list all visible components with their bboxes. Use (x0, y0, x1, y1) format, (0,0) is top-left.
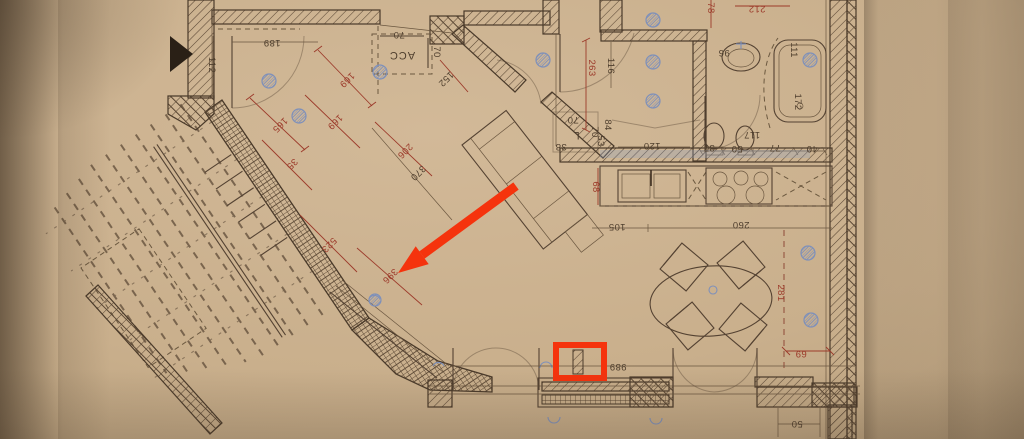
kitchen-counter (600, 166, 832, 206)
wall-left-pier (188, 0, 214, 98)
wall-hall-top (601, 30, 707, 41)
french-door-right (673, 348, 757, 392)
dim-212: 212 (748, 3, 765, 14)
wall-bottom-right-a (755, 377, 813, 387)
tap-icon (736, 41, 746, 49)
dim-50-bath: 50 (731, 143, 742, 154)
dim-111: 111 (788, 42, 799, 58)
room-label-l: L (572, 129, 579, 141)
dim-152: 152 (436, 69, 456, 89)
terrace-dashed-grid (28, 95, 336, 418)
dim-165: 165 (270, 115, 290, 135)
dim-96: 96 (718, 47, 729, 58)
dim-50-bottom: 50 (791, 418, 802, 429)
closet-chevron (612, 120, 700, 128)
dim-112: 112 (206, 57, 217, 73)
dim-53: 53 (595, 135, 606, 146)
parapet-crossblock (630, 377, 673, 407)
side-table (565, 215, 603, 253)
dim-38: 38 (555, 141, 566, 152)
dim-989: 989 (609, 361, 626, 372)
floor-plan-drawing: 189 112 70 ACC 70 152 116 120 96 111 172… (0, 0, 1024, 439)
stove (706, 168, 772, 204)
dim-120: 120 (643, 140, 660, 151)
wall-top-a (212, 10, 380, 24)
dim-84: 84 (602, 119, 613, 130)
annotation-highlight-box (556, 345, 604, 378)
wall-right-insulation (847, 0, 856, 439)
wall-balcony-outer (86, 285, 222, 434)
dim-117: 117 (744, 129, 760, 140)
dim-37: 37 (703, 142, 714, 153)
dim-281: 281 (775, 284, 786, 301)
dim-172: 172 (792, 93, 803, 110)
highlighted-door-jamb (573, 350, 583, 374)
dim-68: 68 (590, 181, 601, 192)
dim-77: 77 (769, 142, 780, 153)
wall-bottom-crossblock (812, 383, 854, 407)
dim-70-acc-right: 70 (431, 46, 442, 57)
dim-69: 69 (795, 348, 806, 359)
wall-hall-diagonal-a (452, 25, 526, 92)
annotation-arrow (398, 186, 516, 273)
wall-left-corner (168, 96, 214, 130)
wall-right-exterior (830, 0, 847, 439)
room-label-acc: ACC (389, 49, 415, 61)
dining-chairs (660, 241, 767, 351)
dim-40: 40 (806, 143, 817, 154)
wall-bottom-pier-right (828, 405, 852, 439)
dim-105: 105 (608, 221, 625, 232)
dim-370: 370 (408, 163, 428, 183)
dim-189: 189 (263, 37, 280, 48)
floor-plan-photo: 189 112 70 ACC 70 152 116 120 96 111 172… (0, 0, 1024, 439)
spotlight-symbols (262, 13, 818, 327)
dining-table (648, 262, 775, 340)
dim-263: 263 (586, 59, 597, 76)
table-center-light (709, 286, 717, 294)
dim-35: 35 (284, 156, 300, 172)
dim-169-b: 169 (325, 112, 345, 132)
wall-top-b (464, 11, 550, 25)
wall-pier-2 (600, 0, 622, 32)
wall-bottom-pier-left (428, 380, 452, 407)
wall-living-diagonal (205, 100, 369, 330)
dim-78: 78 (705, 2, 716, 13)
kitchen-sink (618, 170, 686, 202)
dim-116: 116 (605, 58, 616, 74)
wall-pier-1 (543, 0, 559, 34)
dim-70-l-top: 70 (567, 114, 578, 125)
dim-260: 260 (732, 219, 749, 230)
dim-70-acc-top: 70 (393, 29, 404, 40)
